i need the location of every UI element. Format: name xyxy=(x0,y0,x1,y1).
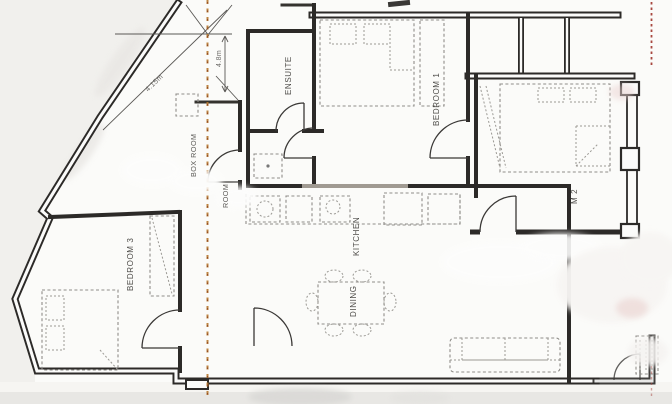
pink-smudge xyxy=(609,84,635,100)
label-box-room: BOX ROOM xyxy=(189,133,198,177)
label-ensuite: ENSUITE xyxy=(284,56,293,95)
floorplan-scan: ENSUITE BEDROOM 1 M 2 BOX ROOM ROOM KITC… xyxy=(0,0,672,404)
label-bedroom3: BEDROOM 3 xyxy=(126,238,135,291)
smudge xyxy=(628,338,668,366)
wc-fixture-dot xyxy=(266,164,269,167)
floor-plan-drawing: ENSUITE BEDROOM 1 M 2 BOX ROOM ROOM KITC… xyxy=(0,0,672,404)
label-room-partial: ROOM xyxy=(221,184,230,208)
pink-smudge xyxy=(616,298,648,318)
window-mullion xyxy=(621,148,639,170)
label-bedroom2-partial: M 2 xyxy=(570,189,579,204)
label-kitchen: KITCHEN xyxy=(352,217,361,256)
smudge xyxy=(390,392,450,404)
label-dim-vertical: 4.8m xyxy=(216,50,223,67)
entrance-threshold xyxy=(186,380,208,389)
label-dining: DINING xyxy=(349,285,358,317)
label-bedroom1: BEDROOM 1 xyxy=(432,73,441,126)
